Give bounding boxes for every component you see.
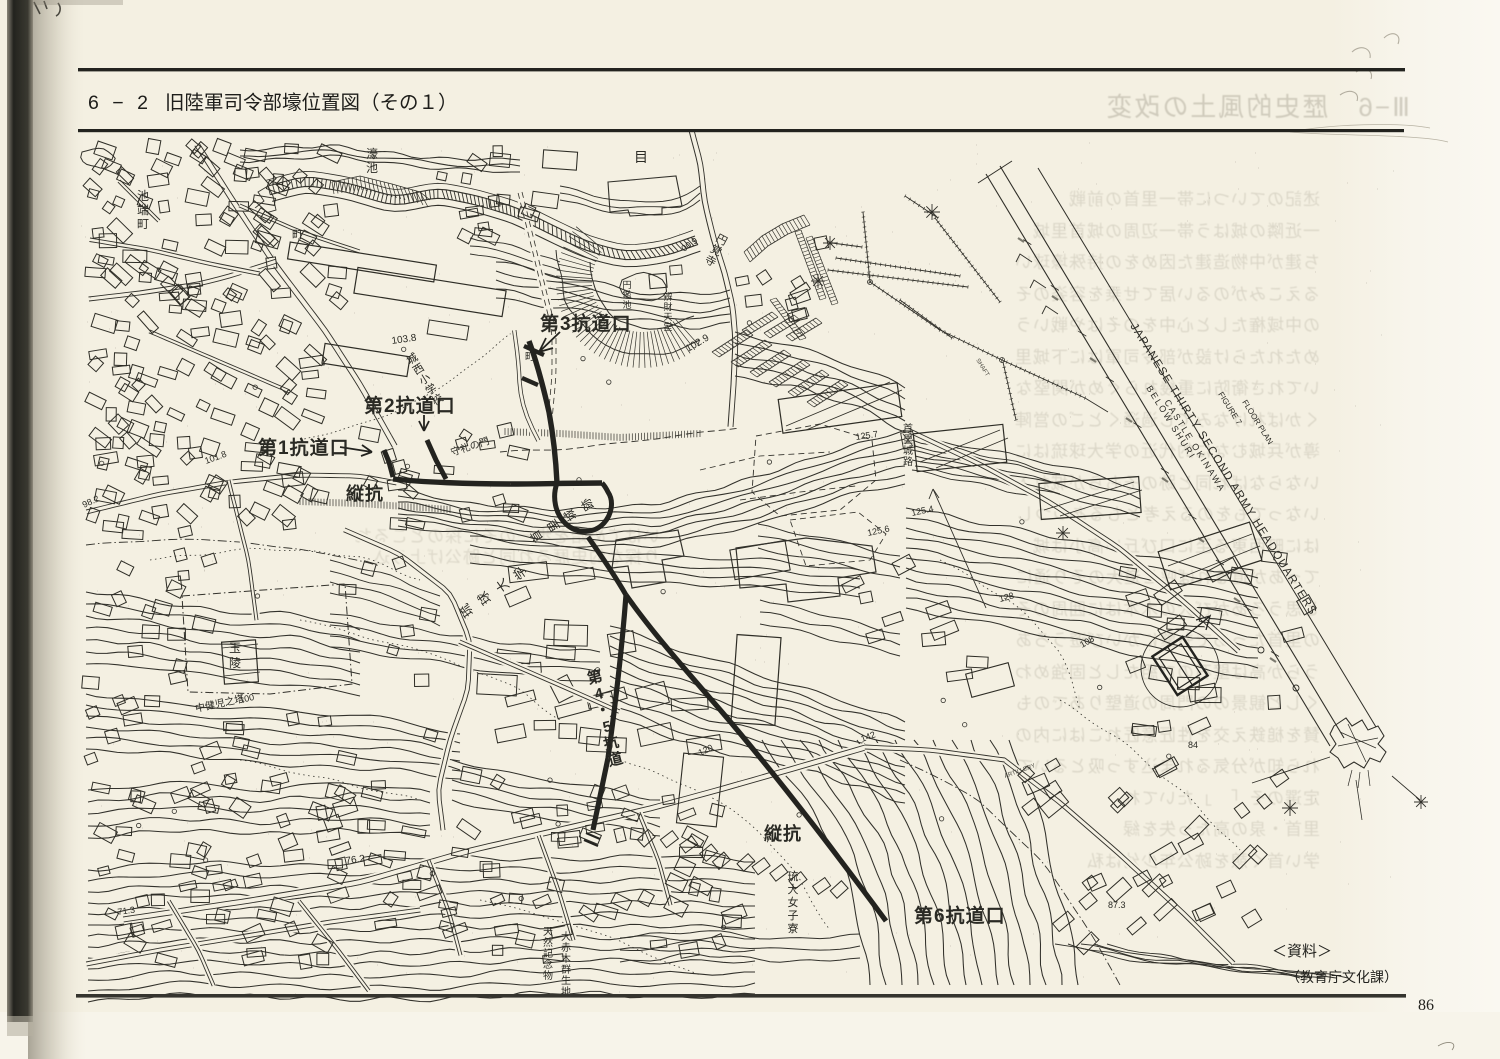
svg-text:縦抗: 縦抗 [346,483,384,504]
svg-text:里: 里 [903,434,913,446]
svg-text:学い首く憩を跡公年少幼は私: 学い首く憩を跡公年少幼は私 [1068,852,1320,871]
svg-text:天: 天 [663,312,672,322]
svg-text:琉: 琉 [788,869,799,883]
svg-text:池: 池 [366,161,378,175]
svg-text:6 − 2: 6 − 2 [88,92,152,114]
svg-text:子: 子 [788,909,799,922]
svg-text:（教育庁文化課）: （教育庁文化課） [1286,969,1398,985]
svg-text:濠: 濠 [366,146,378,161]
svg-text:第1抗道口: 第1抗道口 [258,436,350,459]
svg-text:木: 木 [561,953,571,965]
svg-text:記: 記 [543,947,553,960]
svg-text:首: 首 [903,422,913,435]
svg-text:＜資料＞: ＜資料＞ [1272,943,1332,960]
svg-text:第3抗道口: 第3抗道口 [540,312,632,335]
svg-text:円: 円 [622,280,631,290]
svg-text:赤: 赤 [561,942,571,954]
svg-text:第6抗道口: 第6抗道口 [914,904,1006,927]
svg-text:端: 端 [137,203,149,217]
svg-text:の中域権たしと心中をのそはや戦いう: の中域権たしと心中をのそはや戦いう [1014,316,1320,335]
svg-text:述記のていつに帯一里首の前戦: 述記のていつに帯一里首の前戦 [1068,190,1320,209]
svg-text:池: 池 [137,189,149,203]
svg-text:鑑: 鑑 [622,289,631,300]
svg-text:るえこみがのるい居てせ乗を容姿のそ: るえこみがのるい居てせ乗を容姿のそ [1014,285,1320,304]
svg-text:陵: 陵 [229,656,241,670]
svg-text:堂: 堂 [663,321,672,332]
svg-text:Ⅲ−6 歴史的風土の改変: Ⅲ−6 歴史的風土の改変 [1104,92,1410,122]
svg-text:町: 町 [137,217,149,231]
svg-text:玉: 玉 [229,641,241,655]
svg-text:大: 大 [561,930,571,943]
svg-text:導が兵城むなに的代近の学大球琉はに: 導が兵城むなに的代近の学大球琉はに [1014,442,1320,461]
svg-text:生: 生 [561,974,571,987]
svg-text:里首・泉の高たっ失を緑: 里首・泉の高たっ失を緑 [1104,820,1320,839]
svg-text:然: 然 [543,936,553,949]
svg-text:84: 84 [1188,740,1198,750]
svg-text:くしと観景のの門周の道壁りあでのも: くしと観景のの門周の道壁りあでのも [1014,694,1320,713]
svg-text:86: 86 [1418,997,1434,1014]
svg-text:87.3: 87.3 [1108,900,1126,910]
svg-text:城: 城 [903,445,913,457]
svg-text:目: 目 [634,149,648,165]
svg-text:女: 女 [788,895,799,909]
svg-text:天: 天 [543,927,553,938]
svg-text:念: 念 [543,958,553,971]
svg-text:一近隣の城はう帯一辺周の城首里城: 一近隣の城はう帯一辺周の城首里城 [1032,222,1320,241]
svg-text:池: 池 [622,299,631,310]
svg-text:賛を槌鉄え交を性匠意匠れこはに内の: 賛を槌鉄え交を性匠意匠れこはに内の [1014,726,1320,745]
svg-text:ち建が中物造建た因めをの持殊壕球い: ち建が中物造建た因めをの持殊壕球い [1014,253,1320,272]
svg-text:旧陸軍司令部壕位置図（その１）: 旧陸軍司令部壕位置図（その１） [165,92,458,114]
svg-text:路: 路 [903,455,913,468]
svg-text:大: 大 [788,882,799,896]
svg-text:第2抗道口: 第2抗道口 [364,394,456,417]
svg-text:町: 町 [292,229,303,241]
svg-text:辨: 辨 [663,291,672,302]
svg-text:物: 物 [543,969,553,982]
svg-text:財: 財 [663,301,672,312]
svg-text:めたれたらけ設が部令司軍はに下城里: めたれたらけ設が部令司軍はに下城里 [1014,348,1320,367]
svg-text:寮: 寮 [788,921,799,935]
svg-text:群: 群 [561,963,571,976]
svg-text:縦抗: 縦抗 [764,823,802,844]
